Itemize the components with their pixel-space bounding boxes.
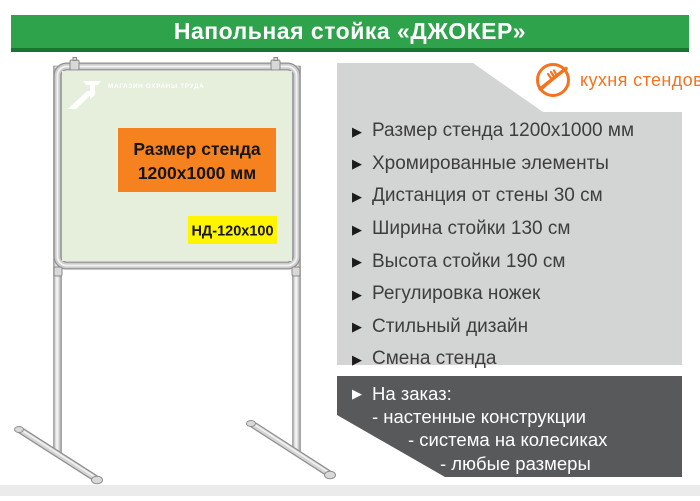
- page-title: Напольная стойка «ДЖОКЕР»: [174, 18, 526, 45]
- no-fork-icon: [534, 61, 572, 99]
- feature-item: ▶ Размер стенда 1200х1000 мм: [352, 115, 677, 148]
- bullet-icon: ▶: [352, 353, 372, 366]
- custom-order-item: - любые размеры: [440, 452, 682, 475]
- custom-order-title-row: ▶ На заказ:: [352, 382, 682, 405]
- feature-label: Регулировка ножек: [372, 283, 540, 305]
- page-background: Напольная стойка «ДЖОКЕР» кухня стендов …: [0, 0, 700, 496]
- bullet-icon: ▶: [352, 157, 372, 170]
- feature-label: Стильный дизайн: [372, 316, 528, 338]
- board-logo-text: МАГАЗИН ОХРАНЫ ТРУДА: [108, 83, 204, 90]
- right-foot: [247, 421, 336, 479]
- feature-item: ▶ Хромированные элементы: [352, 148, 677, 181]
- feature-item: ▶ Регулировка ножек: [352, 278, 677, 311]
- bullet-icon: ▶: [352, 190, 372, 203]
- bullet-icon: ▶: [352, 320, 372, 333]
- bullet-icon: ▶: [352, 223, 372, 236]
- feature-item: ▶ Высота стойки 190 см: [352, 245, 677, 278]
- stand-illustration: МАГАЗИН ОХРАНЫ ТРУДА Размер стенда 1200х…: [0, 52, 350, 496]
- feature-label: Хромированные элементы: [372, 153, 609, 175]
- feature-label: Ширина стойки 130 см: [372, 218, 570, 240]
- feature-item: ▶ Дистанция от стены 30 см: [352, 180, 677, 213]
- custom-order-item: - настенные конструкции: [372, 405, 682, 428]
- footer-strip: [0, 485, 700, 496]
- header-bar: Напольная стойка «ДЖОКЕР»: [11, 15, 689, 52]
- feature-item: ▶ Ширина стойки 130 см: [352, 213, 677, 246]
- model-badge-label: НД-120х100: [191, 224, 273, 240]
- custom-order-item: - система на колесиках: [408, 428, 682, 451]
- brand-logo: кухня стендов: [534, 60, 700, 100]
- stand-svg: МАГАЗИН ОХРАНЫ ТРУДА Размер стенда 1200х…: [0, 52, 350, 496]
- size-badge-line2: 1200х1000 мм: [138, 163, 256, 183]
- model-badge: НД-120х100: [188, 216, 277, 244]
- feature-label: Размер стенда 1200х1000 мм: [372, 120, 634, 142]
- bullet-icon: ▶: [352, 387, 372, 400]
- feature-label: Дистанция от стены 30 см: [372, 185, 603, 207]
- brand-name: кухня стендов: [580, 70, 700, 91]
- size-badge: Размер стенда 1200х1000 мм: [118, 128, 276, 192]
- custom-order-title: На заказ:: [372, 382, 452, 405]
- feature-item: ▶ Стильный дизайн: [352, 311, 677, 344]
- bullet-icon: ▶: [352, 255, 372, 268]
- feature-label: Смена стенда: [372, 348, 496, 370]
- bullet-icon: ▶: [352, 125, 372, 138]
- bullet-icon: ▶: [352, 288, 372, 301]
- feature-item: ▶ Смена стенда: [352, 343, 677, 376]
- size-badge-line1: Размер стенда: [133, 139, 261, 159]
- feature-label: Высота стойки 190 см: [372, 251, 565, 273]
- custom-order-panel: ▶ На заказ: - настенные конструкции - си…: [337, 376, 682, 477]
- feature-list: ▶ Размер стенда 1200х1000 мм ▶ Хромирова…: [352, 115, 677, 376]
